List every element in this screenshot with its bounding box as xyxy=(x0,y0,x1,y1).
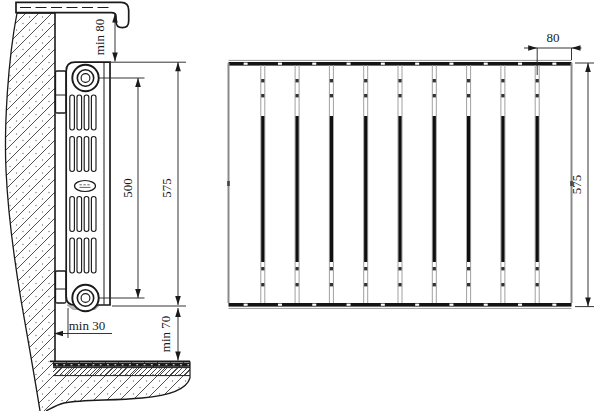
nipple-joint-tick xyxy=(501,267,504,270)
arrow-up-icon xyxy=(135,78,141,87)
top-clearance-label: min 80 xyxy=(92,19,107,55)
bottom-band-tick xyxy=(415,304,419,306)
arrow-down-icon xyxy=(175,296,181,305)
nipple-joint-tick xyxy=(433,79,436,82)
drawing-canvas: min 80 500 575 min 30 min 70 xyxy=(0,0,600,411)
nipple-joint-tick xyxy=(536,94,539,97)
nipple-joint-tick xyxy=(330,94,333,97)
nipple-joint-tick xyxy=(296,79,299,82)
arrow-down-icon xyxy=(135,289,141,298)
dim-wall-clearance: min 30 xyxy=(54,318,112,337)
brand-oval-logo xyxy=(75,181,96,192)
edge-joint-tick xyxy=(227,181,230,186)
nipple-joint-tick xyxy=(433,267,436,270)
bottom-band-tick xyxy=(347,304,351,306)
arrow-down-icon xyxy=(585,298,591,307)
bottom-band-tick xyxy=(244,304,248,306)
top-band-tick xyxy=(552,63,556,65)
bottom-band-tick xyxy=(312,304,316,306)
nipple-joint-tick xyxy=(536,267,539,270)
bottom-band-tick xyxy=(449,304,453,306)
dim-height-front: 575 xyxy=(569,63,594,307)
nipple-joint-tick xyxy=(536,283,539,286)
nipple-joint-tick xyxy=(467,283,470,286)
top-band-tick xyxy=(278,63,282,65)
section-gap-shadow xyxy=(467,116,470,262)
top-band-tick xyxy=(449,63,453,65)
floor-screed-layer xyxy=(53,368,190,375)
top-band-tick xyxy=(381,63,385,65)
nipple-joint-tick xyxy=(261,79,264,82)
dim-top-clearance: min 80 xyxy=(92,14,118,62)
top-band-tick xyxy=(415,63,419,65)
nipple-joint-tick xyxy=(364,94,367,97)
section-gap-shadow xyxy=(536,116,539,262)
bottom-band-tick xyxy=(484,304,488,306)
dim-section-width: 80 xyxy=(524,30,582,75)
arrow-right-icon xyxy=(528,45,537,50)
radiator-installation-drawing: min 80 500 575 min 30 min 70 xyxy=(0,0,600,411)
arrow-up-icon xyxy=(175,308,181,317)
nipple-joint-tick xyxy=(467,79,470,82)
nipple-joint-tick xyxy=(467,267,470,270)
floor-finish-layer xyxy=(53,363,190,367)
dim-floor-clearance: min 70 xyxy=(158,308,181,361)
top-nipple xyxy=(72,65,98,91)
nipple-joint-tick xyxy=(330,283,333,286)
top-band-tick xyxy=(484,63,488,65)
nipple-joint-tick xyxy=(433,283,436,286)
dim-axis-spacing: 500 xyxy=(120,78,141,298)
nipple-joint-tick xyxy=(398,267,401,270)
floor-clearance-label: min 70 xyxy=(158,316,173,352)
nipple-joint-tick xyxy=(296,283,299,286)
bottom-band-tick xyxy=(278,304,282,306)
arrow-down-icon xyxy=(112,53,118,62)
top-band-tick xyxy=(347,63,351,65)
section-gap-shadow xyxy=(296,116,299,262)
nipple-joint-tick xyxy=(536,79,539,82)
nipple-joint-tick xyxy=(433,94,436,97)
top-band-tick xyxy=(312,63,316,65)
section-gap-shadow xyxy=(398,116,401,262)
front-view-sections xyxy=(227,63,573,306)
bottom-band-tick xyxy=(381,304,385,306)
height-side-label: 575 xyxy=(159,178,174,198)
arrow-up-icon xyxy=(175,62,181,71)
nipple-joint-tick xyxy=(296,94,299,97)
nipple-joint-tick xyxy=(296,267,299,270)
height-front-label: 575 xyxy=(569,175,584,195)
nipple-joint-tick xyxy=(467,94,470,97)
section-width-label: 80 xyxy=(547,30,560,45)
nipple-joint-tick xyxy=(364,267,367,270)
nipple-joint-tick xyxy=(330,267,333,270)
nipple-joint-tick xyxy=(398,283,401,286)
section-gap-shadow xyxy=(364,116,367,262)
bottom-band-tick xyxy=(552,304,556,306)
wall-bracket-bottom xyxy=(56,271,67,303)
dim-height-side: 575 xyxy=(159,62,181,305)
wall-bracket-top xyxy=(56,71,67,113)
section-gap-shadow xyxy=(433,116,436,262)
radiator-side-view xyxy=(66,62,110,311)
section-gap-shadow xyxy=(261,116,264,262)
top-band-tick xyxy=(518,63,522,65)
nipple-joint-tick xyxy=(398,94,401,97)
nipple-joint-tick xyxy=(330,79,333,82)
axis-spacing-label: 500 xyxy=(120,178,135,198)
nipple-joint-tick xyxy=(261,267,264,270)
nipple-joint-tick xyxy=(261,94,264,97)
nipple-joint-tick xyxy=(364,283,367,286)
front-view: 80 575 xyxy=(227,30,594,308)
nipple-joint-tick xyxy=(398,79,401,82)
bottom-band-tick xyxy=(518,304,522,306)
wall-clearance-label: min 30 xyxy=(69,318,105,333)
nipple-joint-tick xyxy=(501,94,504,97)
arrow-left-icon xyxy=(572,45,581,50)
top-band-tick xyxy=(244,63,248,65)
bottom-nipple xyxy=(72,285,98,311)
section-gap-shadow xyxy=(501,116,504,262)
arrow-up-icon xyxy=(585,63,591,72)
nipple-joint-tick xyxy=(364,79,367,82)
side-view: min 80 500 575 min 30 min 70 xyxy=(5,2,190,411)
nipple-joint-tick xyxy=(501,79,504,82)
nipple-joint-tick xyxy=(261,283,264,286)
nipple-joint-tick xyxy=(501,283,504,286)
arrow-down-icon xyxy=(175,352,181,361)
section-gap-shadow xyxy=(330,116,333,262)
